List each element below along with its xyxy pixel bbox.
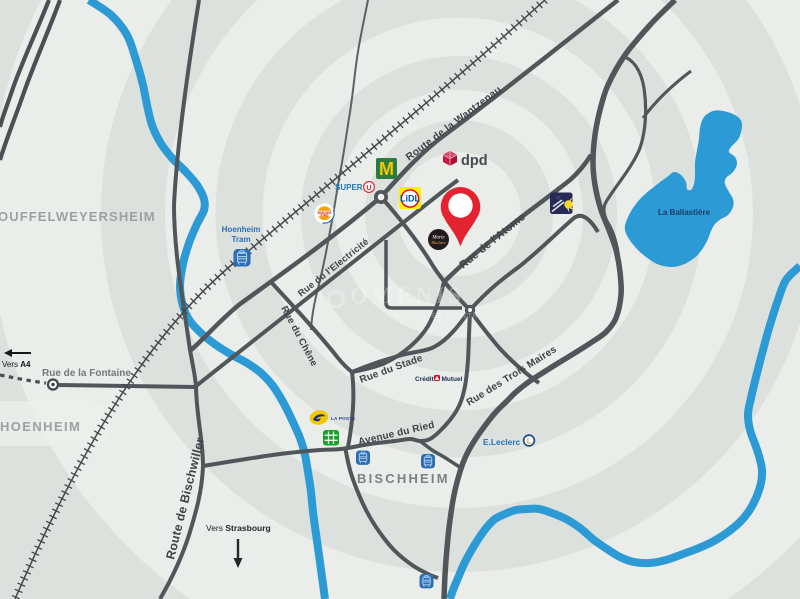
svg-text:Blachère: Blachère	[431, 240, 445, 245]
svg-text:Vers A4: Vers A4	[2, 360, 31, 369]
svg-text:LiDL: LiDL	[400, 194, 420, 204]
svg-text:KING: KING	[321, 214, 329, 218]
svg-text:OMENIS: OMENIS	[350, 283, 464, 308]
svg-text:Crédit: Crédit	[415, 376, 435, 383]
svg-text:dpd: dpd	[461, 153, 488, 169]
svg-text:Rue de la Fontaine: Rue de la Fontaine	[42, 368, 131, 379]
svg-text:LA POSTE: LA POSTE	[331, 416, 355, 421]
svg-text:Mutuel: Mutuel	[442, 376, 463, 383]
svg-text:Tram: Tram	[231, 235, 250, 244]
svg-text:SUPER: SUPER	[335, 183, 363, 192]
svg-text:L: L	[527, 439, 532, 446]
svg-text:Hoenheim: Hoenheim	[222, 225, 261, 234]
svg-text:IMMOBILIER D'ENTREPRISE: IMMOBILIER D'ENTREPRISE	[390, 313, 512, 320]
svg-text:E.Leclerc: E.Leclerc	[483, 438, 521, 447]
svg-text:OUFFELWEYERSHEIM: OUFFELWEYERSHEIM	[0, 209, 156, 224]
svg-text:La Ballastière: La Ballastière	[658, 208, 711, 217]
svg-text:M: M	[379, 159, 394, 179]
svg-text:U: U	[366, 183, 371, 192]
svg-text:HOENHEIM: HOENHEIM	[0, 419, 81, 434]
svg-text:BISCHHEIM: BISCHHEIM	[357, 471, 450, 486]
svg-text:Vers Strasbourg: Vers Strasbourg	[206, 523, 271, 533]
